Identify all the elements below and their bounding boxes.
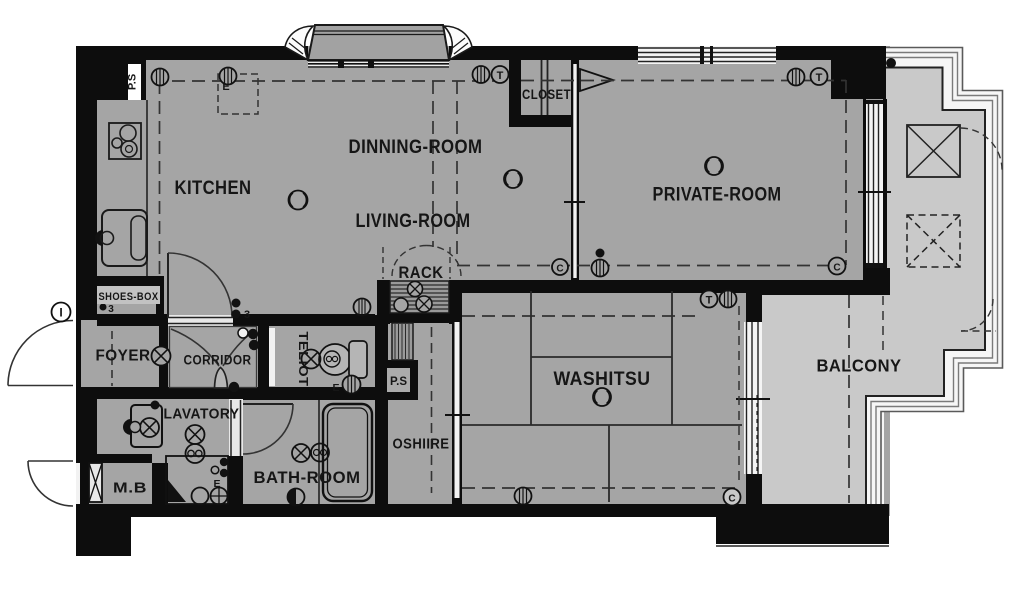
- svg-text:M.B: M.B: [113, 480, 147, 497]
- svg-text:P.S: P.S: [127, 74, 139, 90]
- svg-text:E: E: [213, 478, 220, 490]
- svg-text:FOYER: FOYER: [96, 348, 151, 365]
- svg-text:T: T: [816, 72, 823, 84]
- svg-text:TELIOT: TELIOT: [296, 332, 311, 387]
- svg-text:KITCHEN: KITCHEN: [175, 177, 252, 199]
- svg-text:C: C: [556, 264, 563, 275]
- svg-text:PRIVATE-ROOM: PRIVATE-ROOM: [653, 184, 782, 206]
- svg-text:P.S: P.S: [390, 376, 407, 388]
- svg-text:3: 3: [108, 304, 114, 315]
- svg-text:E: E: [332, 382, 339, 394]
- svg-text:LIVING-ROOM: LIVING-ROOM: [356, 210, 471, 232]
- svg-text:CORRIDOR: CORRIDOR: [184, 353, 252, 368]
- svg-text:DINNING-ROOM: DINNING-ROOM: [349, 136, 483, 158]
- svg-text:WASHITSU: WASHITSU: [554, 368, 651, 390]
- svg-text:RACK: RACK: [399, 264, 444, 282]
- svg-text:CLOSET: CLOSET: [522, 87, 571, 102]
- svg-text:BATH-ROOM: BATH-ROOM: [254, 469, 361, 487]
- svg-text:BALCONY: BALCONY: [817, 356, 902, 376]
- svg-text:LAVATORY: LAVATORY: [164, 406, 240, 423]
- svg-text:T: T: [497, 70, 504, 82]
- svg-text:C: C: [728, 494, 735, 505]
- svg-text:OSHIIRE: OSHIIRE: [393, 437, 450, 453]
- svg-text:I: I: [59, 306, 62, 320]
- svg-text:C: C: [833, 263, 840, 274]
- svg-text:T: T: [706, 295, 713, 307]
- svg-text:3: 3: [244, 309, 250, 321]
- svg-text:SHOES-BOX: SHOES-BOX: [99, 291, 159, 303]
